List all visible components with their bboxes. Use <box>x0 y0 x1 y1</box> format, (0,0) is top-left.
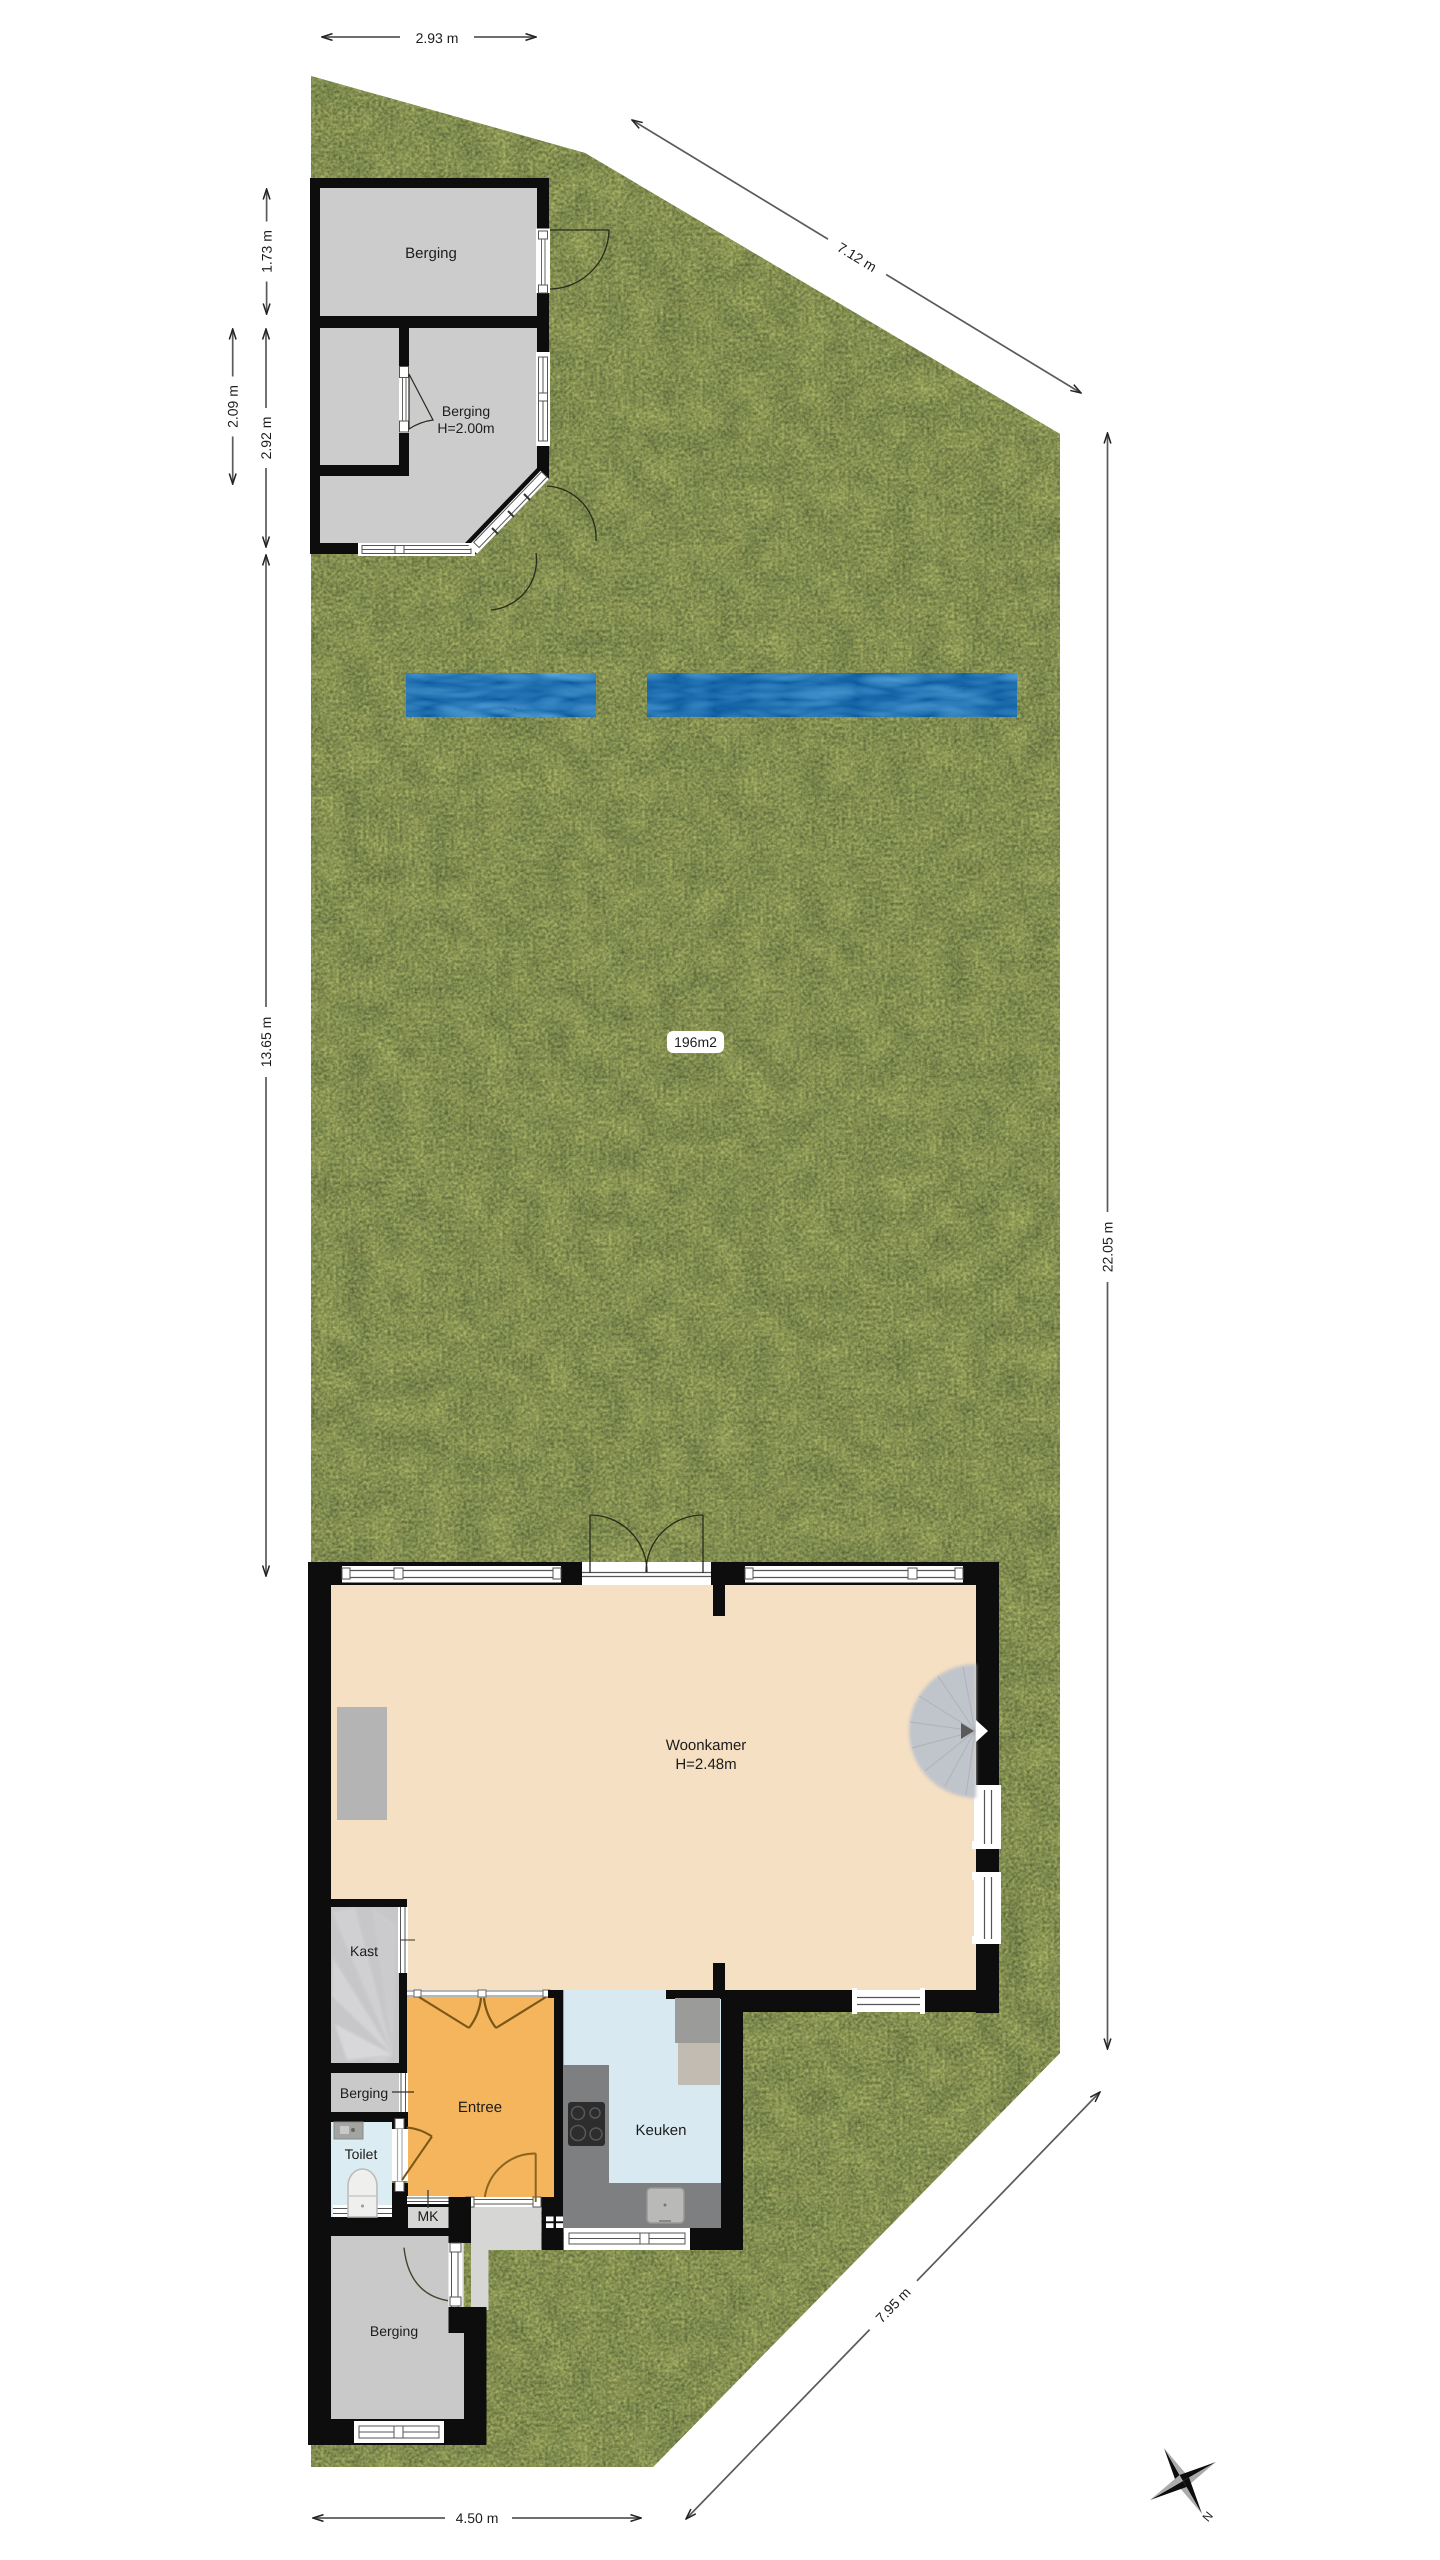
svg-text:Berging: Berging <box>370 2323 418 2339</box>
svg-text:Berging: Berging <box>340 2085 388 2101</box>
svg-text:2.92 m: 2.92 m <box>258 417 274 460</box>
svg-text:Berging: Berging <box>405 245 457 262</box>
svg-text:H=2.48m: H=2.48m <box>675 1756 736 1773</box>
svg-text:Keuken: Keuken <box>636 2122 687 2139</box>
svg-text:196m2: 196m2 <box>674 1034 717 1050</box>
svg-text:1.73 m: 1.73 m <box>259 230 275 273</box>
svg-text:13.65 m: 13.65 m <box>258 1017 274 1068</box>
svg-text:Entree: Entree <box>458 2099 502 2116</box>
svg-text:2.09 m: 2.09 m <box>225 385 241 428</box>
svg-text:Toilet: Toilet <box>345 2146 378 2162</box>
svg-text:Woonkamer: Woonkamer <box>666 1737 747 1754</box>
svg-text:Berging: Berging <box>442 403 490 419</box>
svg-text:22.05 m: 22.05 m <box>1099 1222 1115 1273</box>
svg-text:2.93 m: 2.93 m <box>416 30 459 46</box>
svg-text:Kast: Kast <box>350 1943 378 1959</box>
svg-text:MK: MK <box>417 2208 439 2224</box>
svg-text:H=2.00m: H=2.00m <box>437 420 494 436</box>
svg-text:4.50 m: 4.50 m <box>456 2510 499 2526</box>
